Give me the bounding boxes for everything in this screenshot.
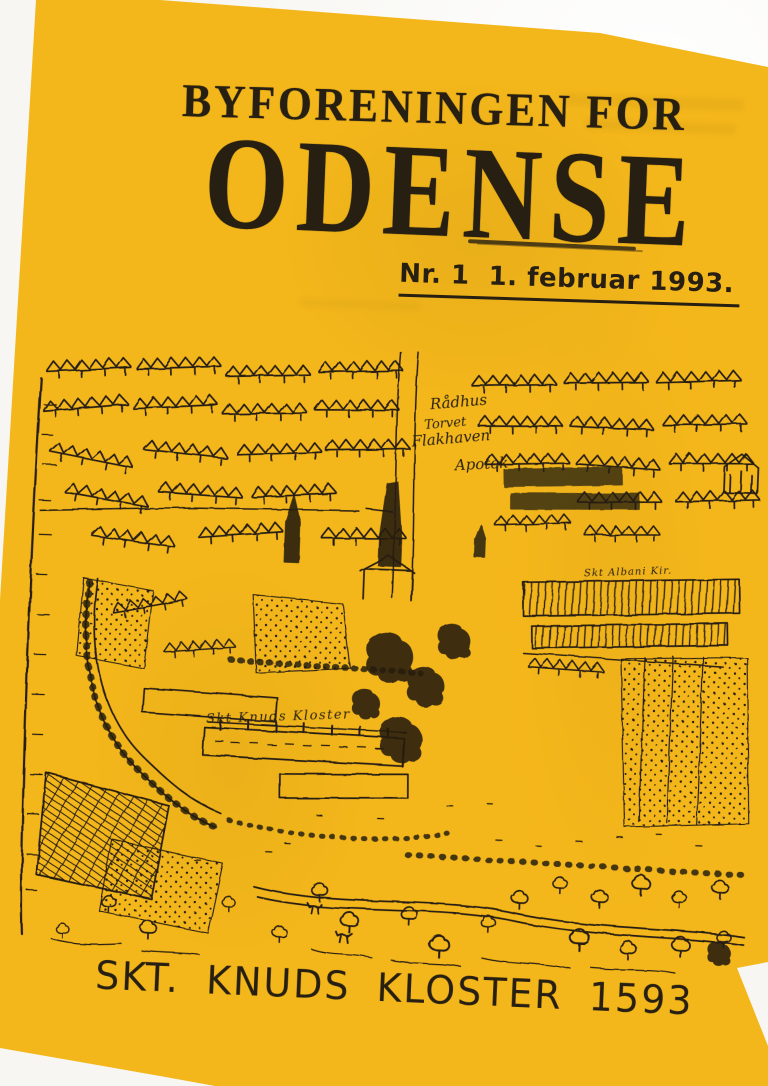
map-label-flakhaven: Flakhaven [410, 426, 491, 451]
map-label-kloster: Skt Knuds Kloster [206, 707, 351, 727]
map-label-apotek: Apotek [452, 454, 508, 475]
map-label-radhus: Rådhus [428, 390, 488, 413]
showthrough-smudge [300, 298, 420, 311]
map-label-albani: Skt Albani Kir. [584, 565, 673, 579]
scanned-page: BYFORENINGEN FOR ODENSE Nr. 1 1. februar… [0, 0, 768, 1086]
historic-town-map-1593: Rådhus Torvet Flakhaven Apotek Skt Alban… [11, 334, 768, 992]
page-content: BYFORENINGEN FOR ODENSE Nr. 1 1. februar… [0, 0, 768, 1086]
scanner-background: BYFORENINGEN FOR ODENSE Nr. 1 1. februar… [0, 0, 768, 1086]
map-drawing [16, 338, 766, 977]
masthead-line2: ODENSE [202, 116, 701, 268]
